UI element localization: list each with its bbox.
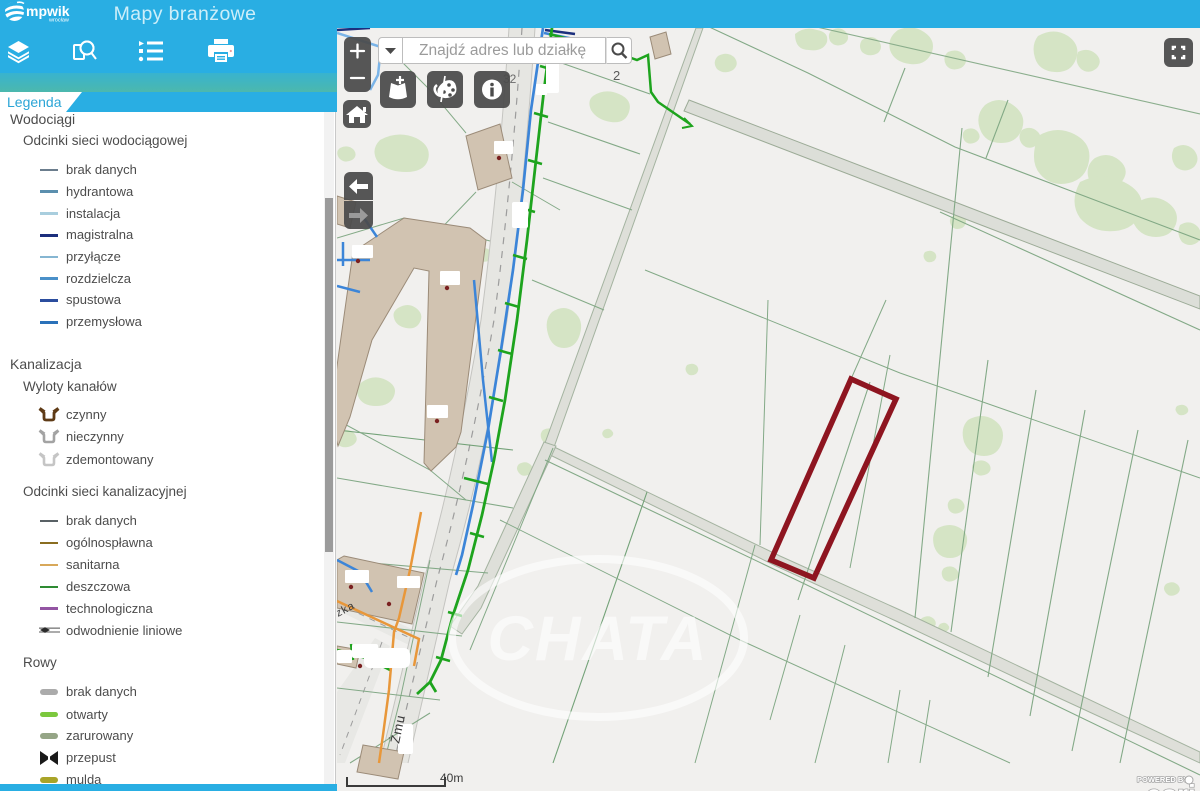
svg-text:2: 2 bbox=[613, 68, 620, 83]
svg-text:40m: 40m bbox=[440, 771, 463, 785]
svg-text:CHATA: CHATA bbox=[487, 604, 708, 674]
